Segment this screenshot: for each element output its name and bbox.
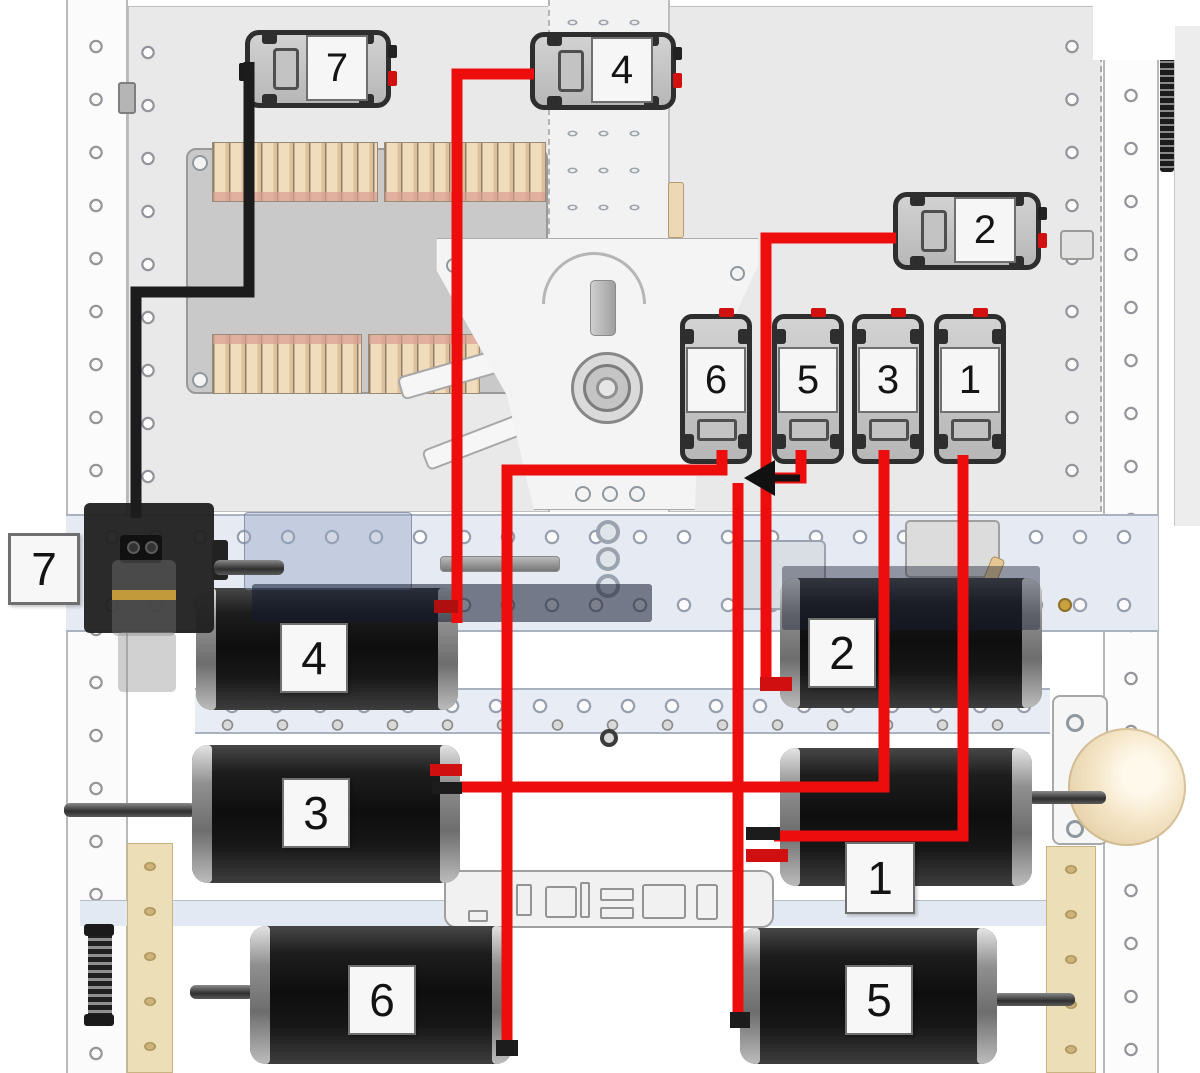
washer-stack: [596, 547, 620, 571]
tan-strip: [1046, 846, 1096, 1073]
red-terminal: [811, 308, 826, 317]
tray-slot: [642, 884, 686, 919]
controller-label: 6: [686, 347, 746, 413]
battery-cells-row: [212, 142, 378, 202]
red-terminal: [719, 308, 734, 317]
motor-end-cap: [740, 928, 760, 1064]
rail-bracket: [1060, 230, 1094, 260]
tray-slot: [600, 907, 634, 919]
controller-label: 7: [306, 35, 368, 101]
bolt: [446, 258, 461, 273]
motor-4-shaft: [214, 560, 284, 575]
controller-module-3: 3: [852, 314, 924, 464]
motor-6-label: 6: [348, 965, 416, 1035]
module-port: [697, 419, 737, 441]
red-terminal: [891, 308, 906, 317]
tray-slot: [580, 882, 590, 918]
controller-label: 5: [778, 347, 838, 413]
panel-corner-cut: [1093, 0, 1175, 60]
battery-cells-row: [384, 142, 546, 202]
controller-label: 2: [954, 197, 1016, 263]
black-wire-terminal: [239, 63, 248, 81]
bolt: [629, 486, 645, 502]
device-7-gold-band: [112, 590, 176, 600]
screw: [192, 155, 208, 171]
screw-row: [200, 718, 1040, 732]
controller-module-7: 7: [245, 30, 391, 108]
red-terminal: [673, 73, 682, 88]
motor-3-shaft: [64, 803, 196, 817]
right-edge-plate: [1174, 26, 1200, 526]
motor-end-cap: [1012, 748, 1032, 886]
device-7-label: 7: [8, 533, 80, 605]
controller-module-6: 6: [680, 314, 752, 464]
bolt: [575, 486, 591, 502]
connector-pin: [127, 541, 140, 554]
motor-5-shaft: [993, 993, 1075, 1006]
game-ball: [1068, 728, 1186, 846]
center-screw: [600, 729, 618, 747]
chain-end: [84, 1014, 114, 1026]
connector-pin: [145, 541, 158, 554]
gold-bolt: [1058, 598, 1072, 612]
motor-end-cap: [250, 926, 270, 1064]
red-terminal: [1038, 233, 1047, 248]
tray-slot: [696, 884, 718, 920]
controller-module-2: 2: [893, 192, 1041, 270]
module-port: [951, 419, 991, 441]
mechanism-post: [590, 280, 616, 336]
hole-pattern: [1056, 20, 1088, 508]
chain-strip: [88, 933, 112, 1017]
red-terminal: [973, 308, 988, 317]
motor-3-label: 3: [282, 778, 350, 848]
motor-end-cap: [492, 926, 512, 1064]
panel-overlay: [252, 584, 652, 622]
washer-stack: [596, 520, 620, 544]
spacer-block: [668, 182, 684, 238]
motor-1-label: 1: [845, 842, 915, 914]
module-port: [558, 50, 584, 92]
controller-module-5: 5: [772, 314, 844, 464]
tray-slot: [545, 886, 577, 918]
controller-label: 1: [940, 347, 1000, 413]
controller-label: 3: [858, 347, 918, 413]
module-port: [869, 419, 909, 441]
tray-slot: [468, 910, 488, 922]
bolt: [602, 486, 618, 502]
motor-6-shaft: [190, 985, 254, 999]
motor-end-cap: [977, 928, 997, 1064]
battery-cells-row: [212, 334, 362, 394]
controller-label: 4: [591, 37, 653, 103]
tray-slot: [516, 884, 532, 916]
motor-4-label: 4: [280, 623, 348, 693]
wiring-diagram: 7 4 2 6 5 3: [0, 0, 1200, 1073]
motor-1-terminal-black: [746, 827, 780, 840]
terminal-nub: [673, 47, 682, 60]
device-7-lower: [118, 632, 176, 692]
terminal-nub: [388, 45, 397, 58]
motor-1-shaft: [1028, 791, 1106, 804]
tan-strip: [127, 843, 173, 1073]
screw: [192, 372, 208, 388]
motor-5-label: 5: [845, 965, 913, 1035]
terminal-nub: [1038, 207, 1047, 220]
motor-end-cap: [780, 748, 800, 886]
red-terminal: [388, 71, 397, 86]
controller-module-4: 4: [530, 32, 676, 110]
hex-shaft: [440, 556, 560, 572]
hole-pattern: [134, 26, 162, 504]
rail-bracket: [118, 82, 136, 114]
bolt: [1066, 714, 1084, 732]
motor-2-label: 2: [808, 618, 876, 688]
module-port: [273, 48, 299, 90]
mechanism-hub-core: [596, 377, 618, 399]
module-port: [921, 210, 947, 252]
motor-end-cap: [440, 745, 460, 883]
controller-module-1: 1: [934, 314, 1006, 464]
bolt: [730, 266, 745, 281]
chain-end: [84, 924, 114, 936]
gearbox-overlay: [244, 512, 412, 590]
module-port: [789, 419, 829, 441]
motor-end-cap: [192, 745, 212, 883]
tray-slot: [600, 888, 634, 901]
